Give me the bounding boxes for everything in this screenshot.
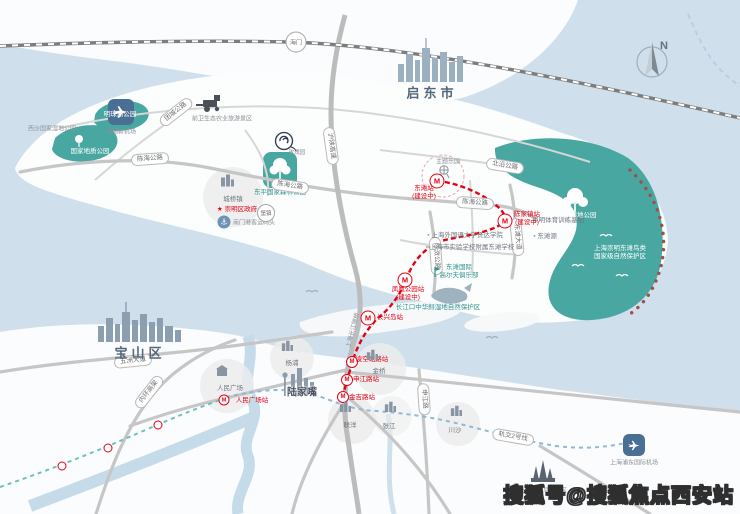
nanmen-port-icon: ⚓ bbox=[218, 216, 231, 229]
shenjiang-station-label: 申江路站 bbox=[353, 376, 379, 384]
haimen-rail-badge: 海门 bbox=[286, 32, 307, 53]
watermark: 搜狐号@搜狐焦点西安站 bbox=[503, 479, 734, 508]
theme-park-label: 主题乐园 bbox=[436, 157, 460, 166]
poi-sports: 崇明体育训练基地 bbox=[528, 217, 584, 225]
renmin-square-icon bbox=[215, 363, 229, 381]
location-map: 海门 启东市 N 南通新机场 明珠湖公园 西沙国家湿地公园 国家地质公园 前卫生… bbox=[0, 0, 740, 514]
geo-park-label: 国家地质公园 bbox=[71, 148, 110, 156]
fenghuang-station-label: 凤凰公园站(建设中) bbox=[392, 286, 425, 302]
plane-glyph bbox=[628, 439, 641, 452]
renmin-square-label: 人民广场 bbox=[217, 385, 243, 393]
xisha-park-label: 西沙国家湿地公园 bbox=[28, 124, 76, 133]
chengqiao-building-icon bbox=[220, 173, 234, 192]
chenhai-road-badge-3: 陈海公路 bbox=[456, 196, 495, 210]
changxing-station-label: 长兴岛站 bbox=[377, 314, 403, 322]
jinqiao-label: 金桥 bbox=[373, 368, 386, 376]
project-label: 玫瑰园 bbox=[289, 148, 306, 156]
metro-logo: M bbox=[434, 177, 440, 186]
sw-line-station-3 bbox=[154, 421, 163, 430]
compass-north-label: N bbox=[660, 40, 668, 52]
district-gov-label: 崇明区政府 bbox=[217, 206, 257, 214]
poi-school-1: 上海外国语大学贤达学院 bbox=[427, 232, 503, 240]
lujiazui-label: 陆家嘴 bbox=[287, 384, 317, 399]
sw-line-station-1 bbox=[58, 462, 67, 471]
renmin-station-badge: M bbox=[219, 395, 230, 406]
jinji-station-label: 金吉路站 bbox=[349, 394, 375, 402]
jinqiao-building-icon bbox=[366, 347, 378, 365]
metro-logo: M bbox=[345, 377, 350, 383]
dongtan-station-label: 东滩站(建设中) bbox=[412, 185, 436, 201]
yangpu-label: 杨浦 bbox=[286, 360, 299, 368]
chengqiao-label: 城桥镇 bbox=[223, 196, 243, 204]
zhangjiang-label: 张江 bbox=[383, 423, 396, 431]
baozhen-badge: 堡镇 bbox=[257, 204, 275, 222]
qidong-city-label: 启东市 bbox=[406, 83, 457, 102]
golf-label: 东滩国际高尔夫俱乐部 bbox=[440, 264, 479, 280]
metro-logo: M bbox=[502, 217, 508, 226]
qianwei-label: 前卫生态农业旅游景区 bbox=[192, 114, 252, 123]
shenjiang-station-badge: M bbox=[341, 374, 353, 386]
lianyang-label: 联洋 bbox=[344, 422, 357, 430]
zhangjiang-building-icon bbox=[384, 399, 396, 417]
baoshan-label: 宝山区 bbox=[114, 343, 165, 362]
metro-logo: M bbox=[222, 397, 227, 403]
chenjiazhen-station-badge: M bbox=[498, 214, 513, 229]
shenjiang-road-badge: 申江路 bbox=[417, 383, 431, 415]
haimen-label: 海门 bbox=[290, 38, 302, 47]
poi-dongtanyuan: 东滩源 bbox=[533, 233, 557, 241]
lianyang-building-icon bbox=[339, 399, 351, 417]
bird-reserve-label-1: 上海崇明东滩鸟类 bbox=[594, 245, 646, 253]
nantong-airport-label: 南通新机场 bbox=[106, 127, 136, 136]
metro-logo: M bbox=[365, 314, 371, 323]
sw-line-station-2 bbox=[104, 444, 113, 453]
pudong-airport-icon bbox=[623, 434, 645, 456]
baozhen-label: 堡镇 bbox=[260, 209, 271, 217]
pudong-airport-label: 上海浦东国际机场 bbox=[610, 458, 658, 467]
poi-school-2: 上海市实验学校附属东滩学校 bbox=[426, 244, 515, 252]
changxing-station-badge: M bbox=[361, 311, 376, 326]
metro-logo: M bbox=[350, 359, 355, 365]
mingzhu-park-label: 明珠湖公园 bbox=[104, 111, 137, 119]
sturgeon-label: 长江口中华鲟湿地自然保护区 bbox=[396, 304, 481, 312]
metro-logo: M bbox=[402, 276, 408, 285]
chuansha-label: 川沙 bbox=[449, 427, 462, 435]
bird-reserve-label-2: 国家级自然保护区 bbox=[594, 253, 646, 261]
chuansha-building-icon bbox=[450, 403, 462, 421]
renmin-station-label: 人民广场站 bbox=[236, 397, 269, 405]
yangpu-building-icon bbox=[281, 338, 293, 356]
